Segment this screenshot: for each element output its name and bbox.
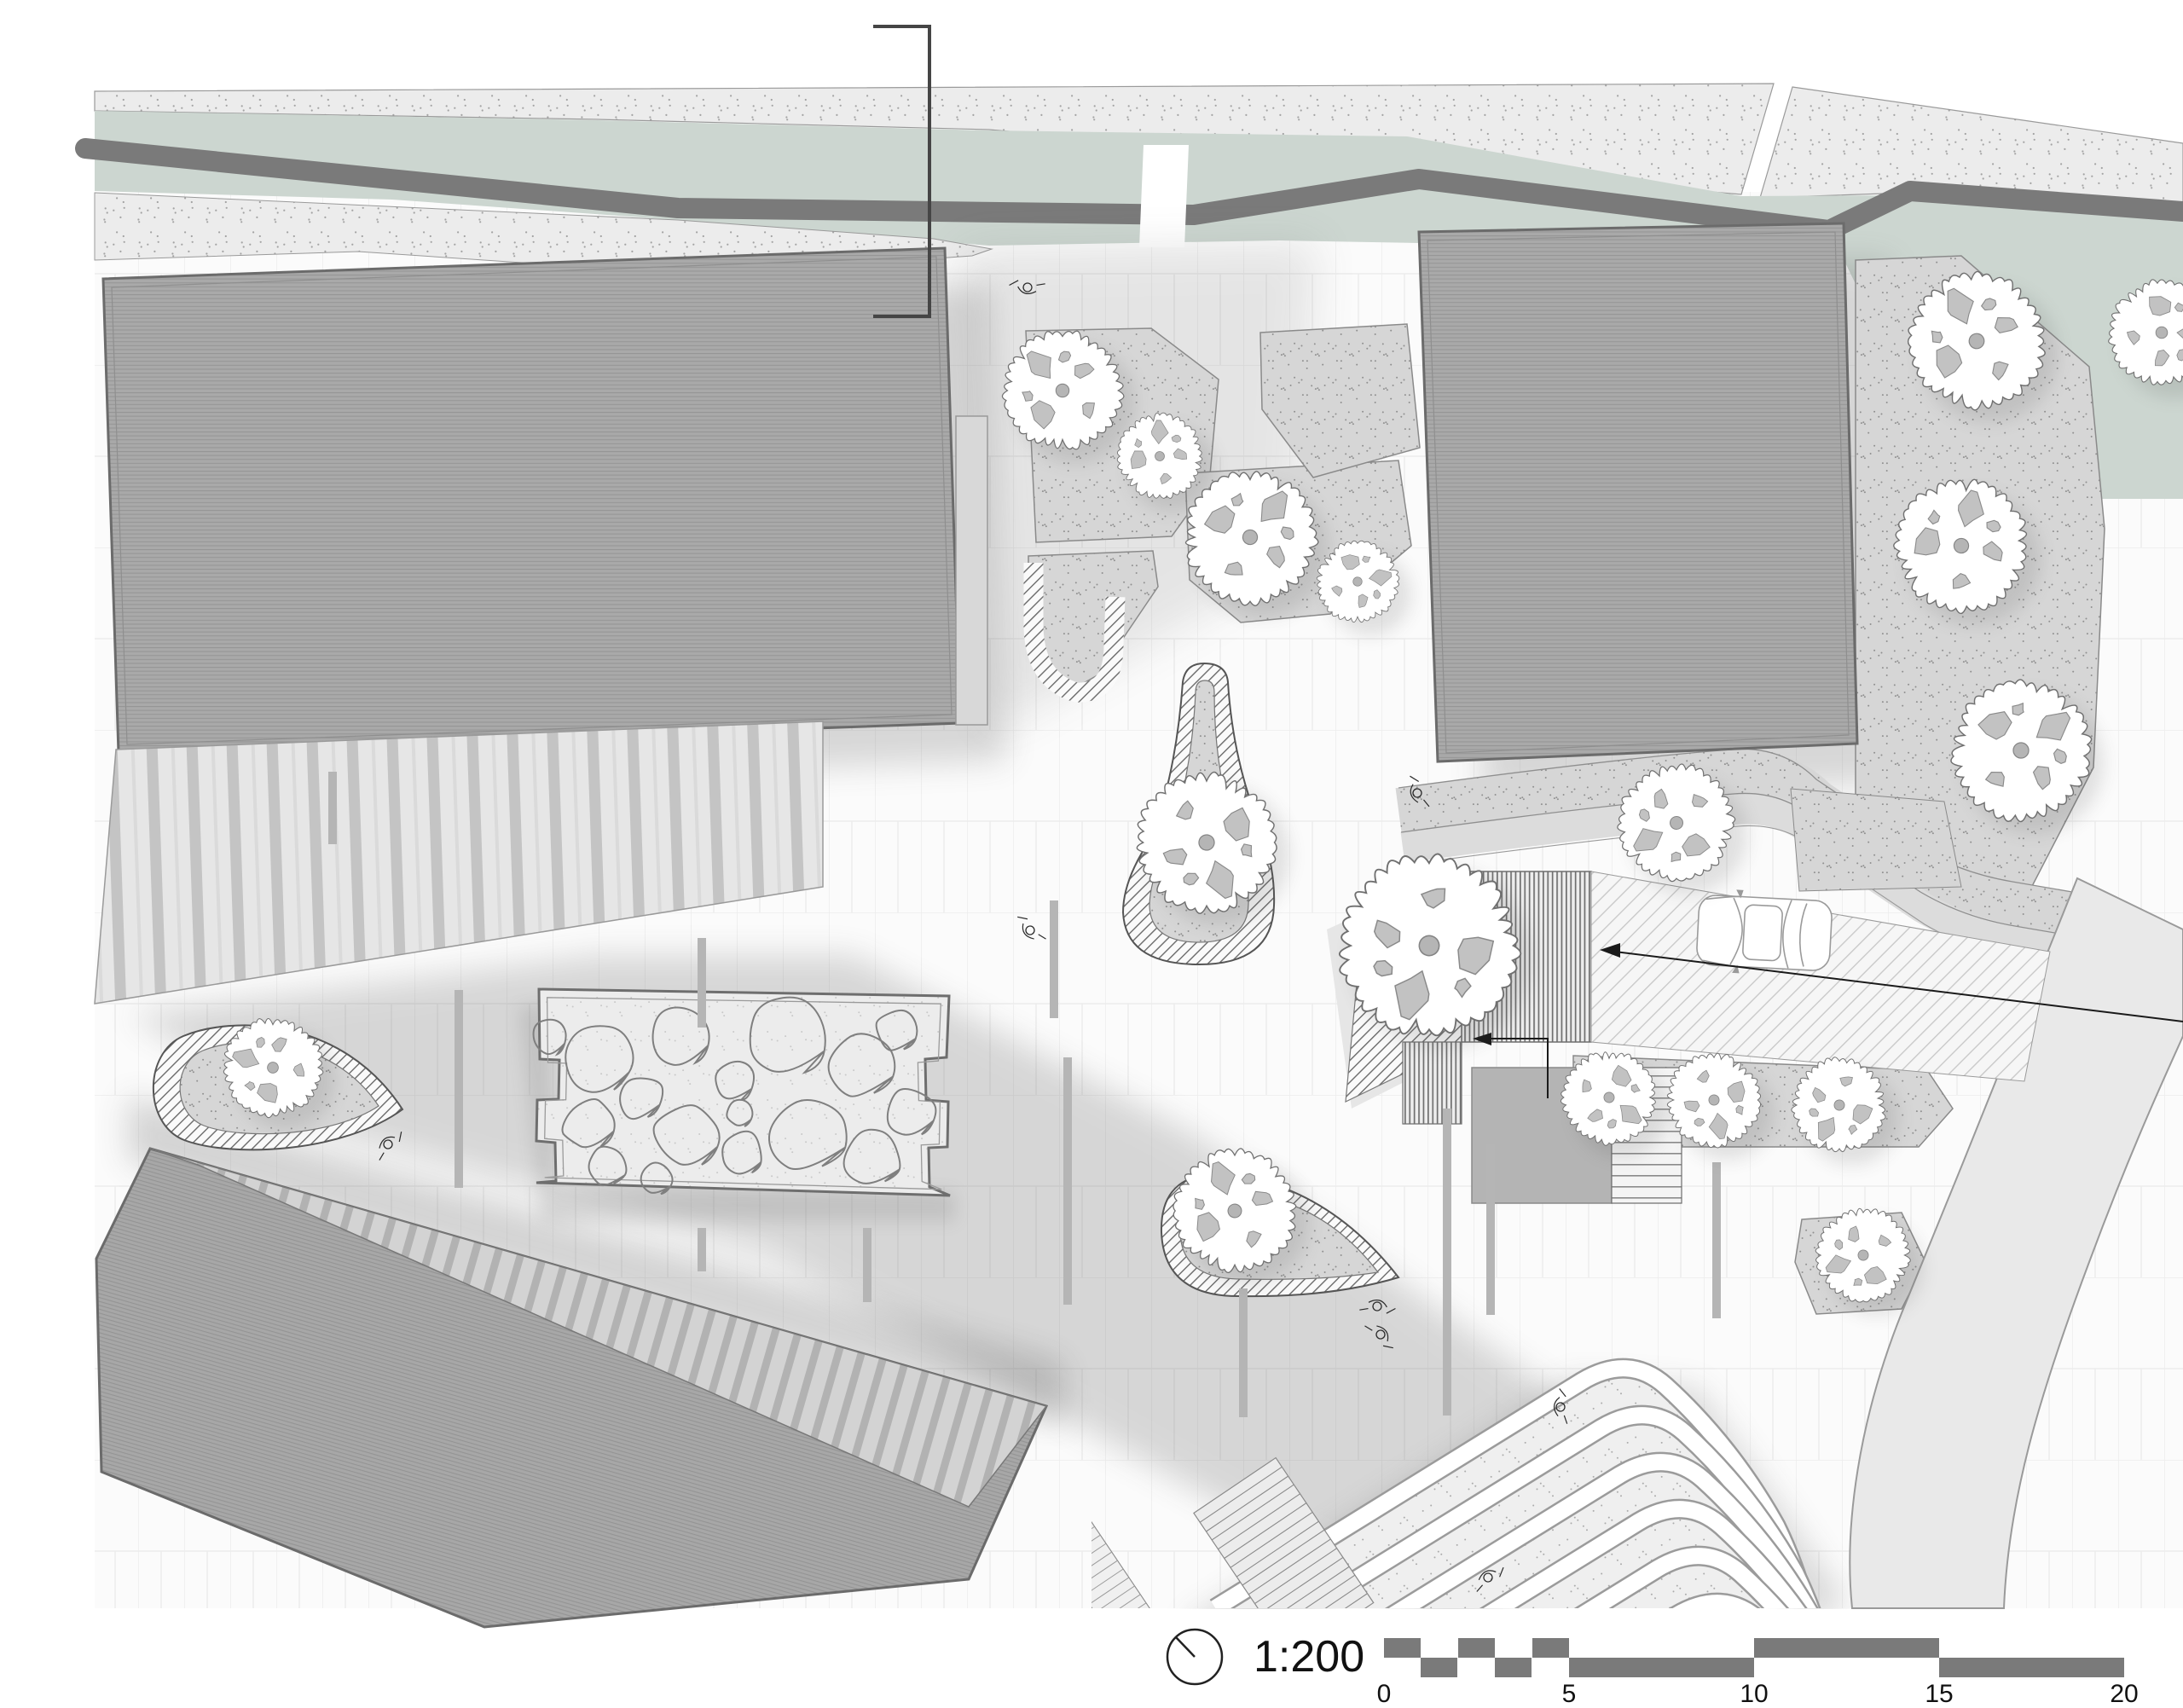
svg-text:20: 20 — [2110, 1680, 2138, 1708]
svg-text:1:200: 1:200 — [1254, 1632, 1364, 1682]
svg-text:10: 10 — [1740, 1680, 1768, 1708]
svg-text:0: 0 — [1377, 1680, 1392, 1708]
svg-text:5: 5 — [1562, 1680, 1577, 1708]
svg-text:15: 15 — [1925, 1680, 1953, 1708]
